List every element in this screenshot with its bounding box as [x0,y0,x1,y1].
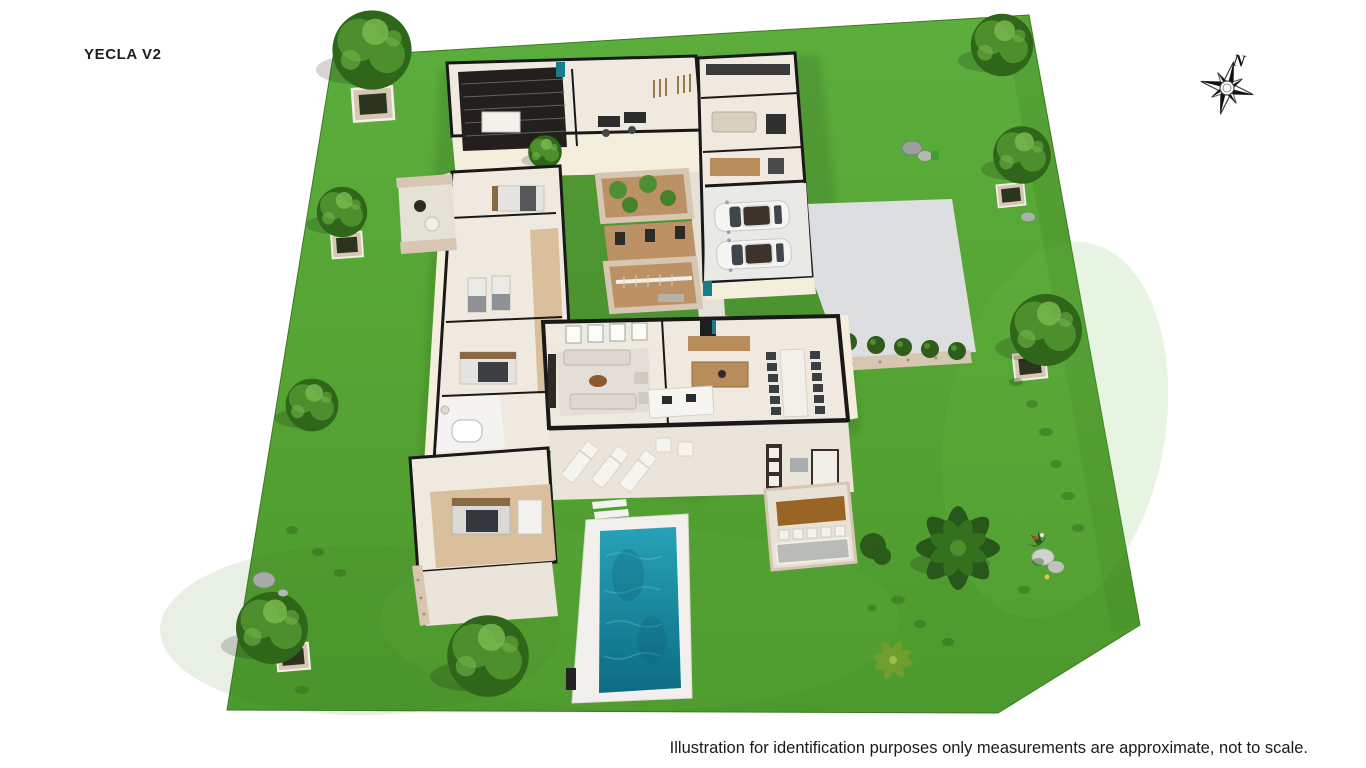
skylight-glass [556,62,565,77]
sofa [564,350,630,365]
study-desk [624,112,646,123]
lounge-sofa [712,112,756,132]
compass-rose-icon [1194,55,1259,120]
floorplan-illustration-page: YECLA V2 [0,0,1366,768]
wardrobe [518,500,542,534]
sofa [570,394,636,409]
breakfast-bar [648,386,714,418]
tree [316,10,412,89]
cube-seat [656,438,671,452]
planter-bed-shrubs [598,171,691,221]
tv-unit [766,114,786,134]
master-bedroom-block [410,448,558,626]
outdoor-table [790,458,808,472]
side-patio [396,174,457,254]
bbq-pergola [765,483,856,570]
garage-side-door [703,281,712,296]
tv-wall-unit [548,354,556,408]
armchair [634,372,648,384]
outdoor-chaise [812,450,838,488]
living-room [548,348,652,416]
planter-bed-trellis [606,259,700,311]
wing-garage-utility [698,53,816,300]
dining-table [780,349,808,417]
planter-bench [658,294,684,302]
laundry-counter [710,158,760,176]
appliance [768,158,784,174]
main-living-block [543,315,858,428]
compass-north-label: N [1231,50,1248,71]
patio-table [425,217,439,231]
closet-island [482,112,520,132]
storage-shelving [706,64,790,75]
cube-seat [678,442,693,456]
wing-dressing-study [447,56,706,178]
site-plan-rendering: N [0,0,1366,768]
bathtub [452,420,482,442]
patio-chair [414,200,426,212]
courtyard-seating-strip [604,221,696,261]
pool-shower [566,668,576,690]
disclaimer-text: Illustration for identification purposes… [670,739,1308,758]
study-desk [598,116,620,127]
pool-water [599,527,681,693]
watering-can [931,151,939,160]
kitchen-cabinets [688,336,750,351]
bathroom [436,395,505,452]
pool [566,514,692,703]
tree-planter [996,183,1025,208]
coffee-table [589,375,607,387]
tree-planter [352,86,394,121]
